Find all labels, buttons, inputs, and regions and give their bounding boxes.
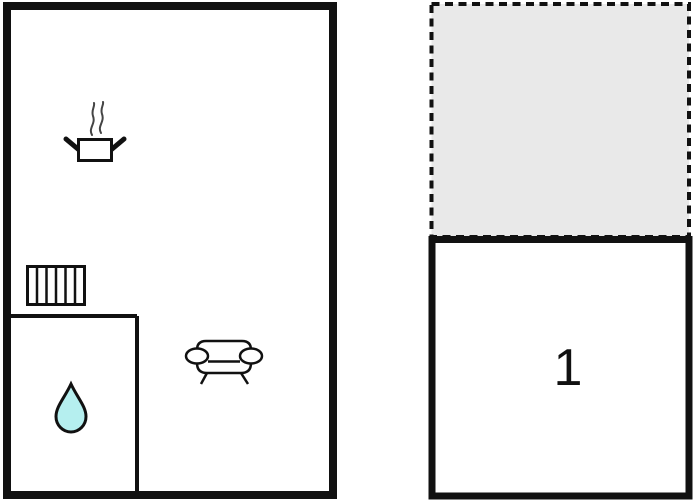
main-unit bbox=[7, 6, 333, 495]
floorplan-svg: 1 bbox=[0, 0, 700, 500]
sofa-armrest-right bbox=[240, 349, 262, 364]
radiator-icon bbox=[28, 267, 85, 305]
room-number-label: 1 bbox=[554, 339, 583, 397]
terrace-area bbox=[432, 4, 690, 237]
pot-body bbox=[79, 140, 112, 161]
floorplan: 1 bbox=[0, 0, 700, 500]
sofa-armrest-left bbox=[186, 349, 208, 364]
bedroom-unit: 1 bbox=[432, 4, 690, 496]
